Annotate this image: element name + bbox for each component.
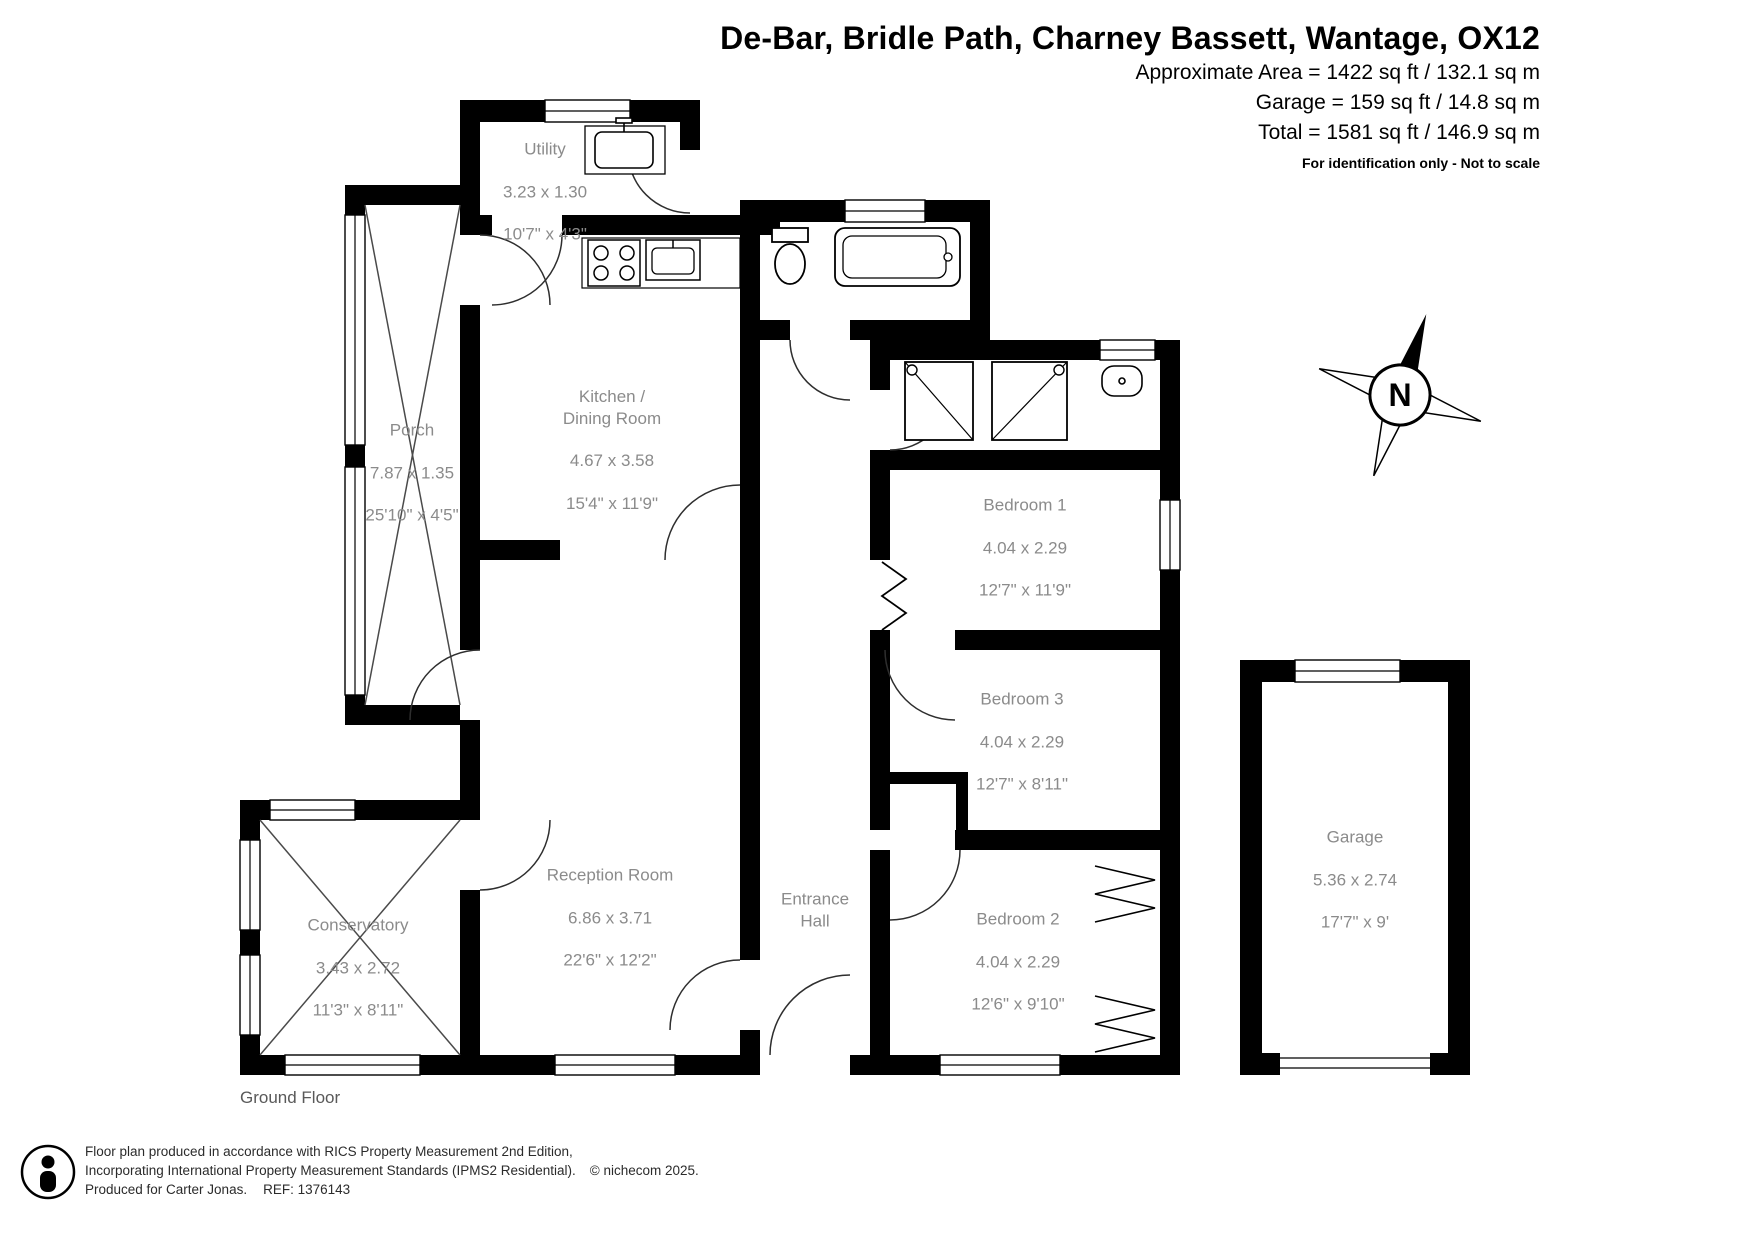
room-label-conservatory: Conservatory 3.43 x 2.72 11'3" x 8'11" [307,894,408,1043]
header: De-Bar, Bridle Path, Charney Bassett, Wa… [720,20,1540,171]
scale-disclaimer: For identification only - Not to scale [720,155,1540,171]
bifold-door-icon [882,562,906,630]
copyright: © nichecom 2025. [590,1163,699,1178]
room-label-entrance-hall: Entrance Hall [781,868,849,953]
compass-north-label: N [1388,377,1411,413]
room-label-garage: Garage 5.36 x 2.74 17'7" x 9' [1313,806,1397,955]
room-label-reception: Reception Room 6.86 x 3.71 22'6" x 12'2" [547,844,674,993]
room-label-bedroom-1: Bedroom 1 4.04 x 2.29 12'7" x 11'9" [979,474,1071,623]
wardrobe-icons [1095,866,1155,1052]
approximate-area: Approximate Area = 1422 sq ft / 132.1 sq… [720,59,1540,87]
footer-line-3: Produced for Carter Jonas.REF: 1376143 [85,1180,699,1199]
floorplan-drawing: N [0,0,1755,1241]
shower-icon [905,362,973,440]
reference-number: REF: 1376143 [263,1182,350,1197]
room-label-utility: Utility 3.23 x 1.30 10'7" x 4'3" [503,118,587,267]
person-icon [22,1146,74,1198]
room-label-kitchen: Kitchen / Dining Room 4.67 x 3.58 15'4" … [563,365,661,535]
total-area: Total = 1581 sq ft / 146.9 sq m [720,119,1540,147]
compass-rose: N [1293,288,1507,502]
kitchen-sink-icon [646,240,700,280]
room-label-porch: Porch 7.87 x 1.35 25'10" x 4'5" [365,399,458,548]
room-label-bedroom-2: Bedroom 2 4.04 x 2.29 12'6" x 9'10" [971,888,1064,1037]
garage-area: Garage = 159 sq ft / 14.8 sq m [720,89,1540,117]
footer-line-1: Floor plan produced in accordance with R… [85,1142,699,1161]
floor-name: Ground Floor [240,1088,340,1108]
shower2-icon [992,362,1067,440]
footer-line-2: Incorporating International Property Mea… [85,1161,699,1180]
utility-sink-icon [585,118,665,174]
floorplan-page: N De-Bar, Bridle Path, Charney Bassett, … [0,0,1755,1241]
page-title: De-Bar, Bridle Path, Charney Bassett, Wa… [720,20,1540,57]
footer: Floor plan produced in accordance with R… [85,1142,699,1199]
basin-icon [1102,366,1142,396]
bathtub-icon [835,228,960,286]
room-label-bedroom-3: Bedroom 3 4.04 x 2.29 12'7" x 8'11" [976,668,1068,817]
toilet-icon [772,228,808,284]
